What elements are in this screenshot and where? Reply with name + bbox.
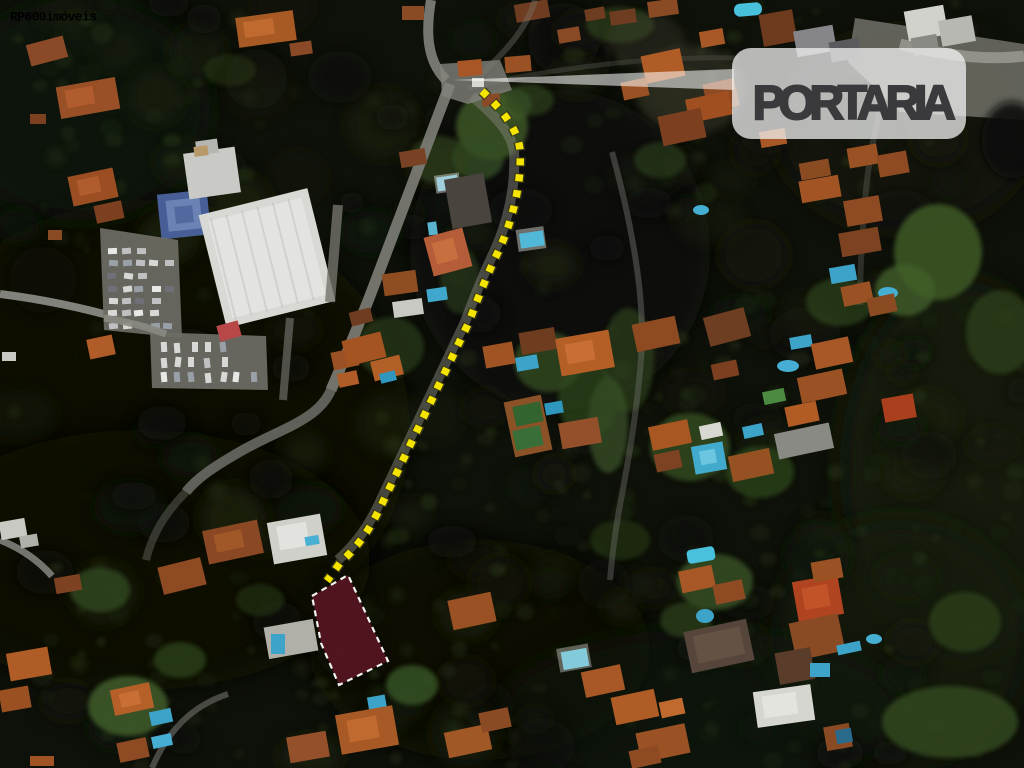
- svg-text:PORTARIA: PORTARIA: [753, 77, 955, 130]
- svg-text:RP600imóveis: RP600imóveis: [10, 10, 97, 25]
